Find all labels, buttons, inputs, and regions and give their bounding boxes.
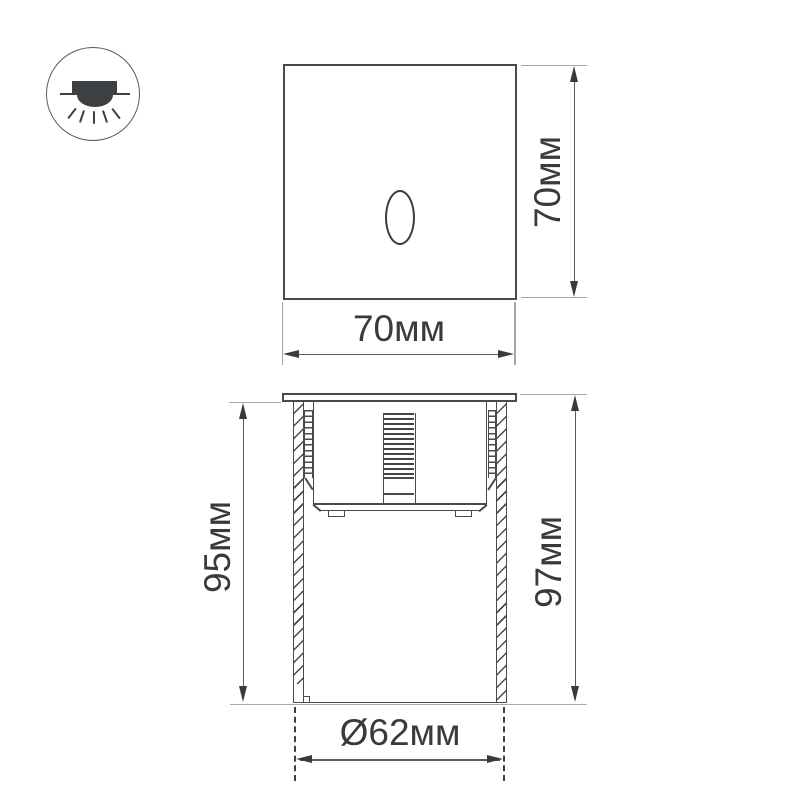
baseline bbox=[230, 704, 587, 705]
arrowhead-left bbox=[296, 755, 312, 763]
column-line bbox=[384, 493, 414, 495]
light-ray-icon bbox=[93, 111, 95, 124]
cup-bottom-taper-right bbox=[478, 504, 487, 512]
front-view-outline bbox=[283, 64, 517, 300]
arrowhead-down bbox=[239, 686, 247, 702]
extension-line bbox=[229, 402, 281, 403]
total-height-label: 97мм bbox=[528, 462, 570, 662]
spring-strip-right bbox=[488, 410, 497, 478]
light-ray-icon bbox=[79, 109, 85, 122]
sleeve-wall-left bbox=[293, 402, 304, 684]
strip-taper-right bbox=[487, 478, 496, 491]
arrowhead-down bbox=[570, 281, 578, 297]
heatsink-ribs bbox=[384, 413, 414, 477]
light-dome-shape bbox=[77, 95, 113, 107]
light-ray-icon bbox=[102, 109, 108, 122]
arrowhead-down bbox=[571, 686, 579, 702]
dimension-line bbox=[287, 354, 511, 356]
light-ray-icon bbox=[111, 108, 121, 120]
arrowhead-up bbox=[571, 395, 579, 411]
front-width-label: 70мм bbox=[299, 308, 499, 350]
arrowhead-right bbox=[498, 350, 514, 358]
cup-bottom-line bbox=[313, 503, 487, 505]
mount-foot-left bbox=[328, 510, 345, 517]
strip-taper-left bbox=[304, 478, 313, 491]
cup-bottom-taper-left bbox=[312, 504, 321, 512]
technical-drawing-canvas: 70мм 70мм bbox=[0, 0, 800, 800]
dimension-line bbox=[243, 407, 245, 699]
arrowhead-up bbox=[239, 403, 247, 419]
extension-line bbox=[514, 302, 515, 365]
dimension-line bbox=[574, 70, 576, 294]
extension-line bbox=[521, 297, 587, 298]
mount-foot-right bbox=[455, 510, 472, 517]
light-ray-icon bbox=[67, 108, 77, 120]
dimension-line bbox=[300, 759, 500, 761]
column-line bbox=[384, 477, 414, 479]
arrowhead-left bbox=[283, 350, 299, 358]
diameter-label: Ø62мм bbox=[300, 712, 500, 754]
recess-depth-label: 95мм bbox=[197, 447, 239, 647]
flange bbox=[282, 393, 517, 402]
dashed-extension-left bbox=[294, 707, 296, 781]
arrowhead-right bbox=[487, 755, 503, 763]
heatsink-column bbox=[383, 413, 416, 504]
sleeve-wall-right bbox=[496, 402, 507, 703]
dimension-line bbox=[575, 399, 577, 699]
front-height-label: 70мм bbox=[527, 82, 569, 282]
spring-strip-left bbox=[304, 410, 313, 478]
recessed-light-icon bbox=[46, 47, 140, 141]
fixture-body-shape bbox=[72, 81, 117, 93]
dashed-extension-right bbox=[503, 707, 505, 781]
arrowhead-up bbox=[570, 66, 578, 82]
lens-ellipse bbox=[385, 190, 415, 245]
